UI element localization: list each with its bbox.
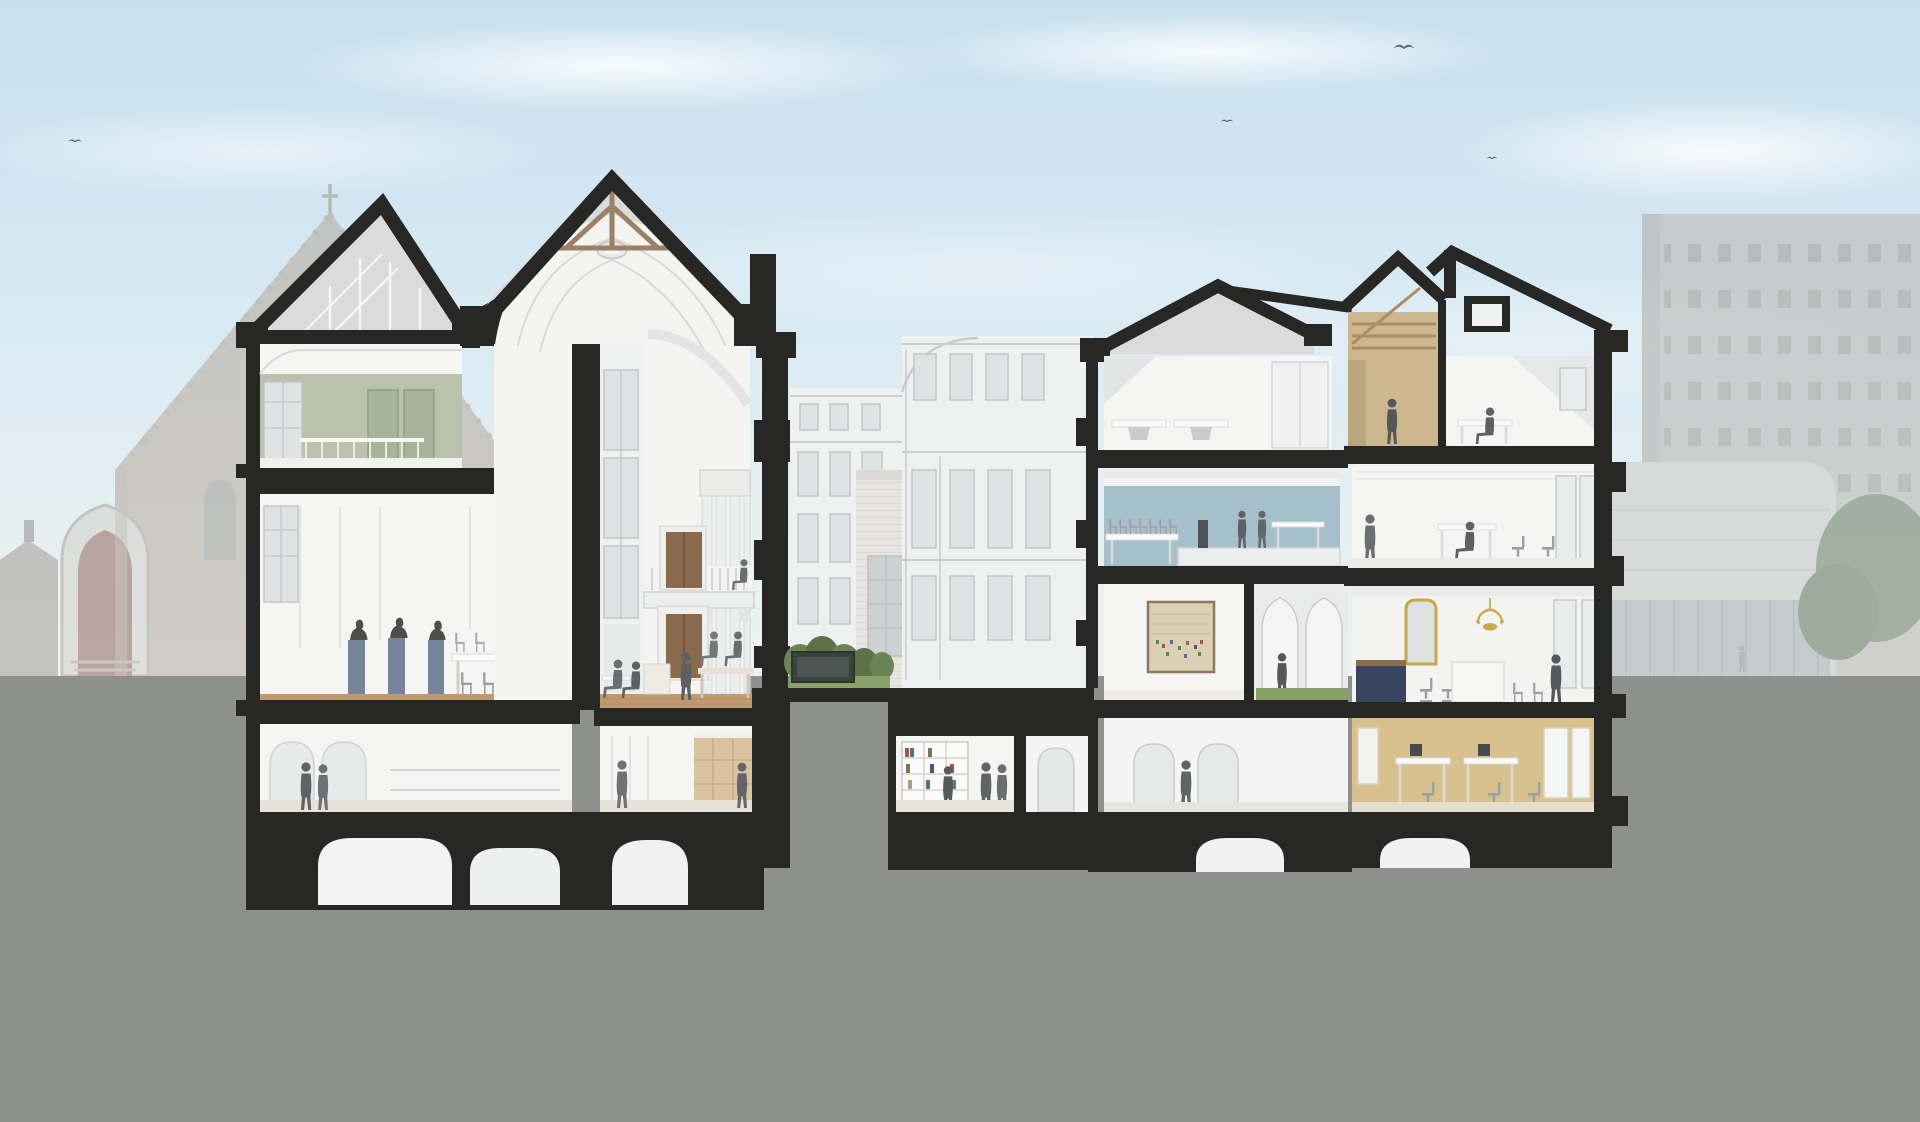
- gallery-floor: [1104, 690, 1244, 700]
- cloud: [290, 20, 950, 112]
- terrazzo-floor: [260, 800, 572, 812]
- wash-basin: [1128, 427, 1150, 440]
- green-salon: Green salon: [260, 344, 462, 468]
- vault-cellar: [1380, 838, 1470, 868]
- attic-door-gap: [1348, 360, 1366, 446]
- planter-water: [797, 657, 849, 677]
- floor-slab: [1344, 446, 1612, 464]
- lower-lobby: Panelled lower lobby: [600, 726, 752, 812]
- gilt-mirror: [1406, 600, 1436, 664]
- eave-block: [1304, 324, 1332, 346]
- hedge-shrub: [870, 652, 894, 680]
- foundation-mass: [888, 812, 1028, 870]
- entablature: [700, 470, 750, 496]
- monitor: [1478, 744, 1490, 756]
- credenza: [1452, 662, 1504, 702]
- work-desk: [1464, 758, 1518, 764]
- arch-opening: [1198, 744, 1238, 806]
- entrance-hall: Entrance hall with arcade: [260, 724, 572, 812]
- floor-slab: [594, 708, 756, 726]
- hall-table: [698, 668, 754, 674]
- vault-cellar: [612, 840, 688, 905]
- building-b-foundation: Foundations: [1344, 812, 1612, 868]
- ochre-floor: [1352, 802, 1598, 812]
- attic-washroom: Attic washroom with basins: [1104, 356, 1332, 450]
- wash-basin: [1190, 427, 1212, 440]
- bg-lancet-window: [204, 480, 236, 560]
- left-basement: Vaulted cellars: [246, 812, 586, 910]
- basin-counter: [1174, 420, 1228, 427]
- pointed-arch: [1306, 598, 1342, 696]
- section-canvas: Pale blue sky with soft clouds Gothic gr…: [0, 0, 1920, 1122]
- lintel-band: [888, 700, 1028, 738]
- library-room: Library room with bookcases: [888, 700, 1028, 870]
- architectural-section-scene: Pale blue sky with soft clouds Gothic gr…: [0, 0, 1920, 1122]
- bg-chimney: [24, 520, 34, 542]
- arch-opening: [1134, 744, 1174, 806]
- ochre-window: [1544, 728, 1568, 798]
- attic-floor-band: [246, 330, 472, 344]
- floor-slab: [246, 700, 580, 724]
- floor-slab: [1344, 702, 1612, 718]
- print-gallery: Gallery with framed historic print: [1104, 584, 1244, 700]
- high-table: [1272, 522, 1324, 527]
- arched-ground-room: Arched ground-floor room: [1026, 700, 1098, 870]
- bust-pedestal: [388, 638, 405, 698]
- navy-cabinet: [1356, 666, 1406, 702]
- blue-committee-room: Blue committee room with mezzanine: [1104, 478, 1340, 566]
- floor-slab: [1344, 568, 1612, 586]
- lectern-box: [644, 664, 670, 694]
- office-window: [1580, 476, 1596, 560]
- gothic-corridor: Arched corridor with green floor: [1244, 584, 1348, 700]
- office-floor: [1352, 558, 1598, 568]
- cut-wall: [888, 736, 896, 812]
- ceiling-band: [1104, 468, 1340, 478]
- ground-floor-finish: [1104, 802, 1348, 812]
- vault-cellar: [1196, 838, 1284, 872]
- cut-mullion: [1244, 584, 1254, 700]
- office-window: [1556, 476, 1576, 560]
- dormer-window: [1472, 304, 1502, 326]
- floor-slab: [1096, 450, 1348, 468]
- right-building-a: Attic washroom with basins Blue committe…: [1080, 286, 1352, 872]
- salon-baseboard: [260, 458, 462, 468]
- ochre-office: Ochre office room: [1352, 718, 1598, 812]
- floor-slab: [1096, 566, 1348, 584]
- floor-slab: [1096, 700, 1348, 718]
- tall-window: [1582, 600, 1596, 688]
- work-desk: [1396, 758, 1450, 764]
- bg-tree: [1798, 564, 1878, 660]
- salon-door: [368, 390, 398, 464]
- attic-window: [1560, 368, 1586, 410]
- partition-ledge: [694, 732, 752, 738]
- attic-office: Attic workplace: [1446, 356, 1594, 446]
- lintel-band: [1026, 700, 1096, 738]
- cornice-band: [1352, 586, 1598, 596]
- attic-divider: [1438, 300, 1446, 446]
- eave-block: [460, 306, 494, 346]
- ochre-window: [1358, 728, 1378, 784]
- terrace-slab: [788, 688, 1094, 702]
- cabinet-top: [1356, 660, 1406, 666]
- bg-side-roof: [0, 540, 58, 676]
- monitor: [1410, 744, 1422, 756]
- ridge-post: [1444, 250, 1456, 298]
- bg-buttress: [115, 470, 127, 676]
- library-floor: [896, 800, 1014, 812]
- cloud: [910, 12, 1510, 92]
- stately-office: Stately office with chandelier and gilt …: [1352, 586, 1598, 702]
- vault-cellar: [318, 838, 452, 905]
- foundation-mass: [1026, 812, 1098, 870]
- open-office: Open-plan office floor: [1352, 464, 1598, 568]
- lectern: [1198, 520, 1208, 548]
- bust-pedestal: [348, 640, 365, 698]
- hall-left-wall: [572, 344, 600, 710]
- arcade-arch: [322, 742, 366, 808]
- conference-table: [1106, 534, 1178, 540]
- salon-rail: [300, 438, 424, 442]
- lobby-floor: [600, 800, 752, 812]
- attic-desk: [1458, 420, 1512, 426]
- framed-print: [1148, 602, 1214, 672]
- basin-counter: [1112, 420, 1166, 427]
- bust-pedestal: [428, 640, 444, 698]
- ochre-window: [1572, 728, 1590, 798]
- mezzanine-floor: [1178, 548, 1340, 566]
- cut-wall: [1014, 736, 1026, 812]
- blue-cornice: [1104, 478, 1340, 486]
- green-floor: [1256, 688, 1348, 700]
- vault-cellar: [470, 848, 560, 905]
- arch-opening: [1038, 748, 1074, 812]
- building-a-ground: [1104, 718, 1348, 812]
